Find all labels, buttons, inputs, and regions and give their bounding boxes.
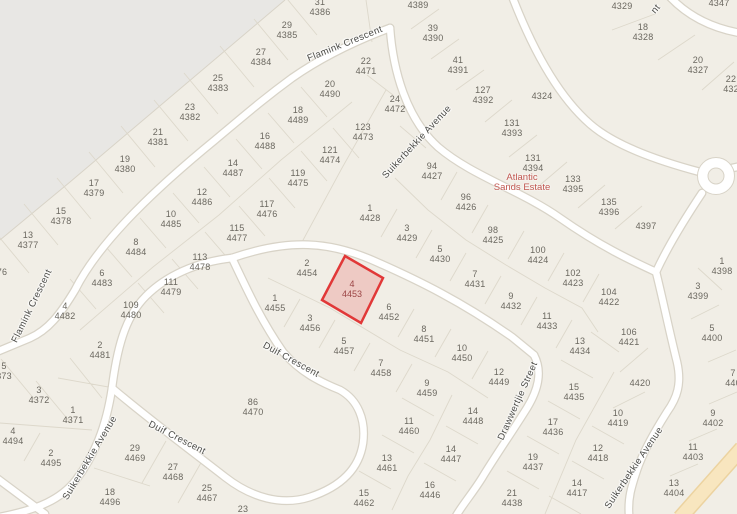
parcel-label: 294469: [125, 443, 146, 463]
parcel-label: 1174476: [257, 199, 278, 219]
parcel-label: 124449: [489, 367, 510, 387]
parcel-label: 4329: [612, 1, 633, 11]
parcel-label: 4347: [709, 0, 730, 8]
parcel-label: 1314393: [502, 118, 523, 138]
parcel-label: 34456: [300, 313, 321, 333]
parcel-label: 1194475: [288, 168, 309, 188]
parcel-label: 394390: [423, 23, 444, 43]
parcel-label: 134461: [377, 453, 398, 473]
parcel-label: 134404: [664, 478, 685, 498]
selected-parcel-lot: 4: [342, 279, 362, 289]
parcel-label: 54457: [334, 336, 355, 356]
parcel-label: 1064421: [619, 327, 640, 347]
parcel-label: 4389: [408, 0, 429, 10]
parcel-label: 1004424: [528, 245, 549, 265]
parcel-label: 214381: [148, 127, 169, 147]
parcel-label: 154462: [354, 488, 375, 508]
parcel-label: 194380: [115, 154, 136, 174]
parcel-label: 1094480: [121, 300, 142, 320]
parcel-label: 244472: [385, 94, 406, 114]
parcel-label: 194437: [523, 452, 544, 472]
parcel-label: 184496: [100, 487, 121, 507]
parcel-label: 1134478: [190, 252, 211, 272]
parcel-label: 864470: [243, 397, 264, 417]
parcel-label: 1044422: [599, 287, 620, 307]
parcel-label: 144487: [223, 158, 244, 178]
parcel-label: 124418: [588, 443, 609, 463]
parcel-label: 1214474: [320, 145, 341, 165]
parcel-label: 14398: [712, 256, 733, 276]
parcel-label: 274384: [251, 47, 272, 67]
parcel-label: 84484: [126, 237, 147, 257]
parcel-label: 144417: [567, 478, 588, 498]
parcel-label: 184489: [288, 105, 309, 125]
parcel-label: 294385: [277, 20, 298, 40]
parcel-label: 114460: [399, 416, 420, 436]
parcel-label: 214438: [502, 488, 523, 508]
parcel-label: 84451: [414, 324, 435, 344]
parcel-label: 54430: [430, 244, 451, 264]
selected-parcel-label[interactable]: 4 4453: [342, 279, 362, 299]
parcel-label: 144447: [441, 444, 462, 464]
parcel-label: 204327: [688, 55, 709, 75]
parcel-label: 1354396: [599, 197, 620, 217]
parcel-label: 94432: [501, 291, 522, 311]
parcel-label: 144448: [463, 406, 484, 426]
parcel-label: 174379: [84, 178, 105, 198]
parcel-label: 44494: [3, 426, 24, 446]
parcel-label: 4420: [630, 378, 651, 388]
map-canvas[interactable]: 3143864389294385394390274384414391254383…: [0, 0, 737, 514]
parcel-label: 23: [238, 504, 248, 514]
parcel-label: 4324: [532, 91, 553, 101]
parcel-label: 5373: [0, 361, 12, 381]
parcel-label: 984425: [483, 225, 504, 245]
parcel-label: 34399: [688, 281, 709, 301]
parcel-label: 24481: [90, 340, 111, 360]
parcel-label: 184328: [633, 22, 654, 42]
parcel-label: 1114479: [161, 277, 182, 297]
estate-name-line2: Sands Estate: [494, 183, 551, 193]
parcel-label: 7440: [725, 368, 737, 388]
parcel-label: 1274392: [473, 85, 494, 105]
parcel-label: 94459: [417, 378, 438, 398]
parcel-label: 76: [0, 267, 7, 277]
parcel-label: 114433: [537, 311, 558, 331]
parcel-label: 34372: [29, 385, 50, 405]
parcel-label: 274468: [163, 462, 184, 482]
roundabout: [698, 158, 735, 195]
parcel-label: 74458: [371, 358, 392, 378]
parcel-label: 204490: [320, 79, 341, 99]
parcel-label: 1024423: [563, 268, 584, 288]
parcel-label: 254383: [208, 73, 229, 93]
parcel-label: 154435: [564, 382, 585, 402]
parcel-label: 234382: [180, 102, 201, 122]
parcel-label: 164488: [255, 131, 276, 151]
parcel-label: 14428: [360, 203, 381, 223]
parcel-label: 1154477: [227, 223, 248, 243]
parcel-label: 944427: [422, 161, 443, 181]
parcel-label: 64452: [379, 302, 400, 322]
parcel-label: 1334395: [563, 174, 584, 194]
parcel-label: 34429: [397, 223, 418, 243]
parcel-label: 174436: [543, 417, 564, 437]
parcel-label: 124486: [192, 187, 213, 207]
parcel-label: 104450: [452, 343, 473, 363]
selected-parcel-erf: 4453: [342, 289, 362, 299]
parcel-label: 54400: [702, 323, 723, 343]
parcel-label: 254467: [197, 483, 218, 503]
estate-name-label: Atlantic Sands Estate: [494, 173, 551, 193]
parcel-label: 134434: [570, 336, 591, 356]
parcel-label: 24495: [41, 448, 62, 468]
parcel-label: 44482: [55, 301, 76, 321]
parcel-label: 1234473: [353, 122, 374, 142]
parcel-label: 964426: [456, 192, 477, 212]
parcel-label: 64483: [92, 268, 113, 288]
parcel-label: 414391: [448, 55, 469, 75]
parcel-label: 104419: [608, 408, 629, 428]
parcel-label: 164446: [420, 480, 441, 500]
parcel-label: 224471: [356, 56, 377, 76]
map-graphics: [0, 0, 737, 514]
parcel-label: 14371: [63, 405, 84, 425]
parcel-label: 24454: [297, 258, 318, 278]
parcel-label: 314386: [310, 0, 331, 17]
parcel-label: 114403: [683, 442, 704, 462]
parcel-label: 134377: [18, 230, 39, 250]
parcel-label: 154378: [51, 206, 72, 226]
parcel-label: 1314394: [523, 153, 544, 173]
parcel-label: 22432: [723, 74, 737, 94]
parcel-label: 94402: [703, 408, 724, 428]
parcel-label: 14455: [265, 293, 286, 313]
parcel-label: 4397: [636, 221, 657, 231]
parcel-label: 74431: [465, 269, 486, 289]
parcel-label: 104485: [161, 209, 182, 229]
